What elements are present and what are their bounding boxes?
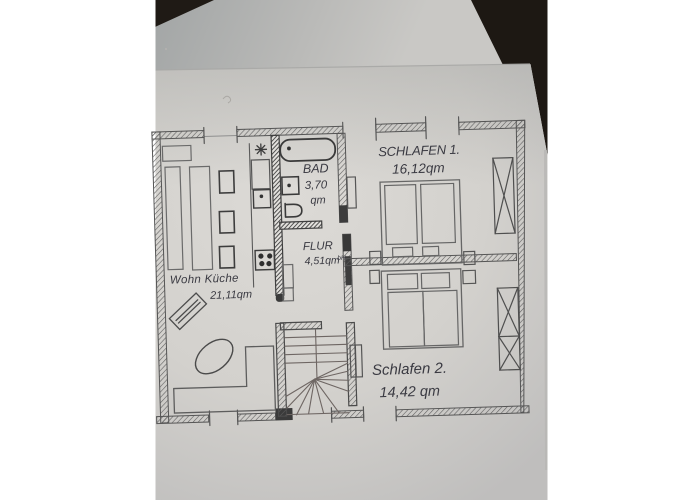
svg-text:SCHLAFEN 1.: SCHLAFEN 1. [378,142,460,159]
svg-text:qm: qm [310,194,326,206]
svg-text:14,42 qm: 14,42 qm [379,383,440,401]
svg-text:4,51qm: 4,51qm [305,254,341,267]
svg-text:21,11qm: 21,11qm [209,289,252,302]
svg-text:Wohn Küche: Wohn Küche [170,273,239,287]
svg-text:Schlafen 2.: Schlafen 2. [372,360,448,379]
svg-text:16,12qm: 16,12qm [392,160,445,177]
svg-text:bH: bH [337,255,346,262]
svg-text:FLUR: FLUR [303,240,333,253]
svg-text:3,70: 3,70 [305,179,328,192]
svg-text:BAD: BAD [303,161,329,176]
